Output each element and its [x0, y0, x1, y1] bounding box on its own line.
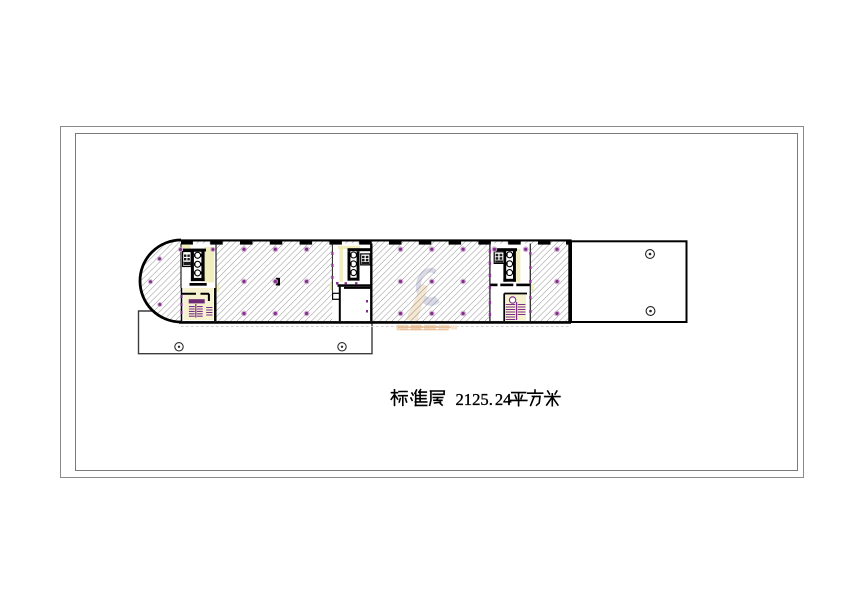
svg-text:2125.24: 2125.24	[456, 390, 513, 409]
